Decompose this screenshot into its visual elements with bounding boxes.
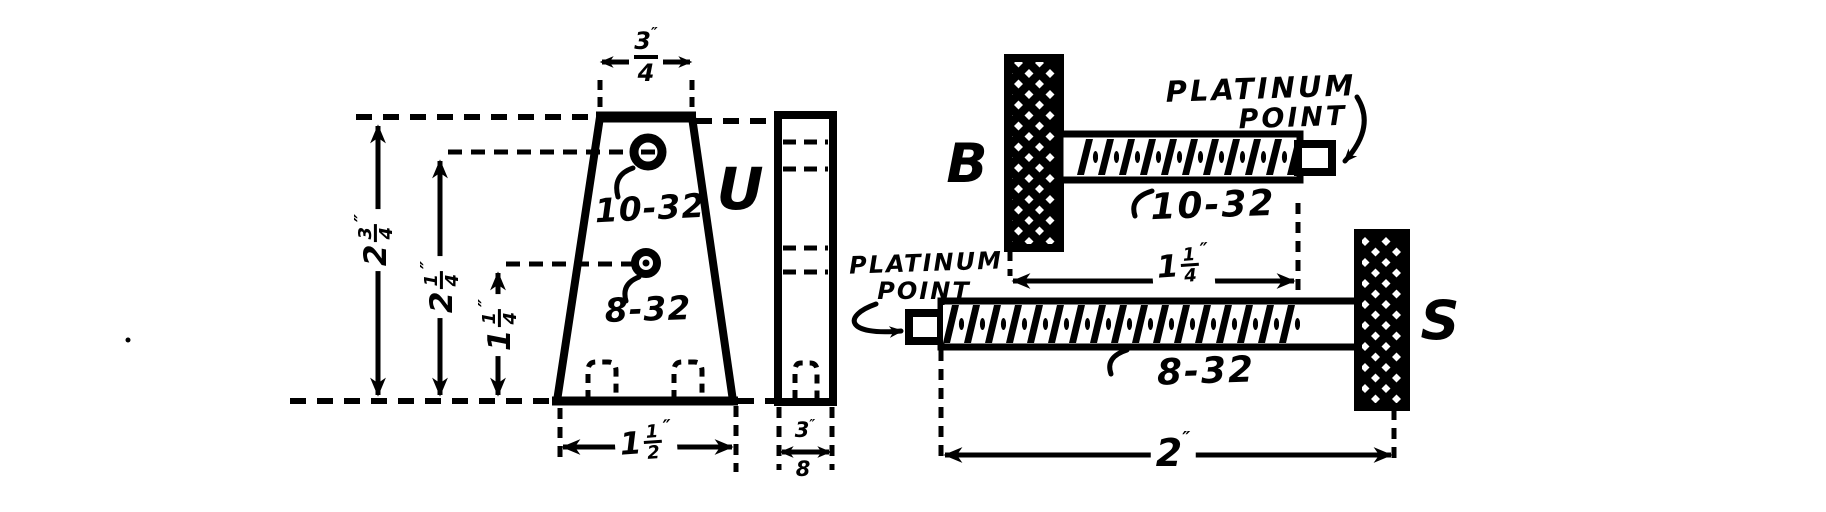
front-view-bracket (552, 117, 738, 401)
screw-s-platinum-label: PLATINUM (849, 248, 1004, 277)
paper-speck (126, 338, 131, 343)
hole-10-32-label: 10-32 (594, 189, 706, 228)
screw-s-platinum-point-tip (909, 313, 941, 341)
dim-bottom-hole-height-label: 1 14 ″ (479, 294, 521, 356)
dim-overall-height-label: 2 34 ″ (355, 209, 397, 271)
dim-thickness-denominator: 8 (796, 457, 811, 481)
screw-s-knurled-head (1358, 233, 1406, 407)
screw-b-thread-label: 10-32 (1150, 186, 1276, 226)
dim-bottom-width-label: 1 12 ″ (614, 420, 679, 466)
side-view-outline (778, 115, 833, 402)
hole-8-32-label: 8-32 (604, 291, 692, 327)
construction-lines (290, 80, 832, 472)
screw-s-point-label: POINT (877, 279, 970, 303)
screw-b-point-label: POINT (1238, 103, 1348, 134)
part-label-u: U (716, 160, 763, 218)
part-label-s: S (1421, 294, 1460, 348)
dim-screw-b-length-label: 1 14 ″ (1151, 243, 1216, 289)
screw-b-callout-pointer (1345, 97, 1364, 161)
dim-top-width-label: 3″ 4 (629, 28, 663, 86)
dim-thickness-numerator: 3″ (795, 418, 815, 442)
screw-b-knurled-head (1008, 58, 1060, 248)
part-label-b: B (946, 137, 987, 191)
screw-s-callout-pointer (854, 304, 901, 332)
screw-s-thread-leader (1110, 350, 1127, 374)
screw-b-threads (1077, 139, 1295, 175)
screw-b-platinum-point-tip (1298, 144, 1332, 172)
engineering-drawing-canvas: 3″ 4 2 34 ″ 2 14 ″ 1 14 ″ 1 12 ″ 3″ 8 U … (0, 0, 1826, 512)
screw-s-threads (943, 305, 1300, 343)
hole-8-32-center-dot (643, 260, 650, 267)
dim-screw-s-length-label: 2 ″ (1151, 432, 1196, 474)
dim-top-hole-height-label: 2 14 ″ (421, 256, 463, 318)
side-view-bracket (778, 115, 833, 402)
screw-s-thread-label: 8-32 (1156, 352, 1255, 391)
